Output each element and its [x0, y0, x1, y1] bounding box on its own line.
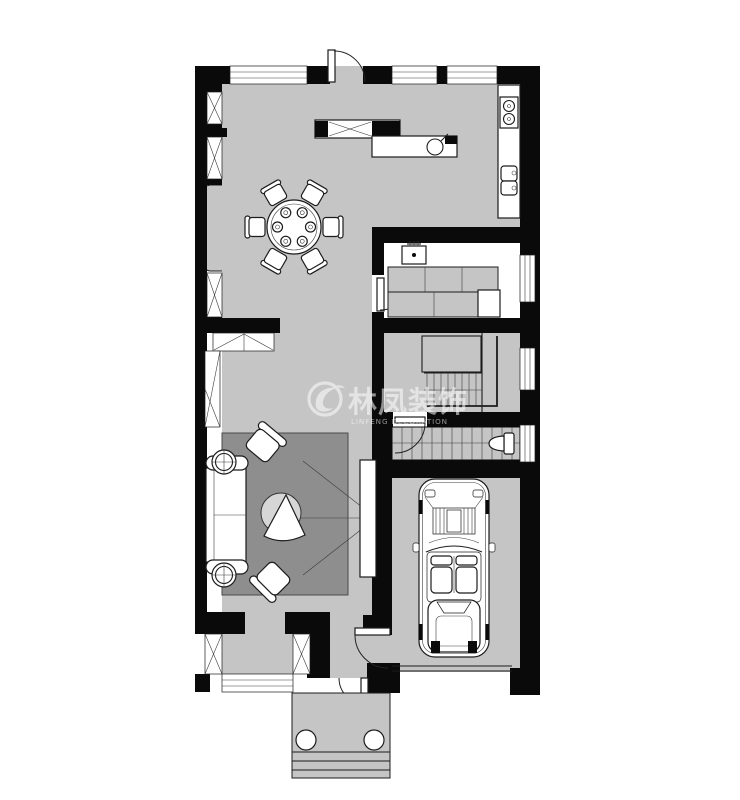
car-tire [486, 500, 490, 514]
wall-bottom [195, 612, 245, 634]
wall-living-divider [195, 318, 280, 333]
car-headlight [473, 490, 483, 497]
wall-guest-bottom [372, 318, 520, 333]
window-top-left [230, 66, 307, 84]
car-tire [419, 624, 423, 640]
sink-icon [501, 166, 517, 195]
cabinet-left [205, 351, 220, 427]
bay-window-column-left [205, 634, 222, 674]
wall-top [307, 66, 330, 84]
window-left-2 [207, 137, 222, 179]
car-tire [486, 624, 490, 640]
car-tire [419, 500, 423, 514]
floor-bay-connector [245, 612, 285, 634]
wall-corner-br [510, 668, 540, 695]
wall-top [437, 66, 447, 84]
window-top-right [447, 66, 497, 84]
porch [292, 693, 390, 778]
guest-side-table [478, 290, 500, 317]
car-headlight [425, 490, 435, 497]
stove-icon [500, 97, 518, 128]
car-rear [428, 600, 480, 653]
round-side-table [212, 450, 236, 474]
wall-stub-left [215, 128, 227, 137]
round-side-table [212, 563, 236, 587]
wall-guest-top [372, 227, 520, 243]
car-cockpit [427, 552, 481, 602]
watermark-text-en: LINFENG DECORATION [351, 417, 448, 426]
car-mirror [413, 543, 419, 552]
wall-left [195, 66, 207, 634]
plate-icon [306, 222, 316, 232]
car-mirror [489, 543, 495, 552]
cabinet-top [213, 333, 274, 351]
porch-column [364, 730, 384, 750]
window-right-3 [520, 425, 535, 462]
car-grille [433, 508, 475, 534]
window-left-1 [207, 92, 222, 124]
car [413, 479, 495, 657]
window-right-2 [520, 348, 535, 390]
porch-column [296, 730, 316, 750]
wall-garage-top [372, 460, 520, 478]
window-top-mid [392, 66, 437, 84]
floor-bay-window [222, 634, 293, 674]
dining-chair [323, 216, 343, 238]
wall-top [363, 66, 392, 84]
dining-chair [245, 216, 265, 238]
bay-window-column-right [293, 634, 310, 674]
floorplan-svg: 林凤装饰 LINFENG DECORATION [0, 0, 740, 800]
wall-right [535, 66, 540, 695]
tv-cabinet [360, 460, 376, 577]
bay-window-glass [222, 674, 293, 692]
window-right-1 [520, 255, 535, 302]
plate-icon [273, 222, 283, 232]
floor-kitchen-dining [222, 84, 520, 227]
watermark-text-cn: 林凤装饰 [348, 385, 468, 419]
wall-entry-stub [363, 615, 390, 628]
window-left-3 [207, 273, 222, 317]
floorplan-image: 林凤装饰 LINFENG DECORATION [0, 0, 740, 800]
